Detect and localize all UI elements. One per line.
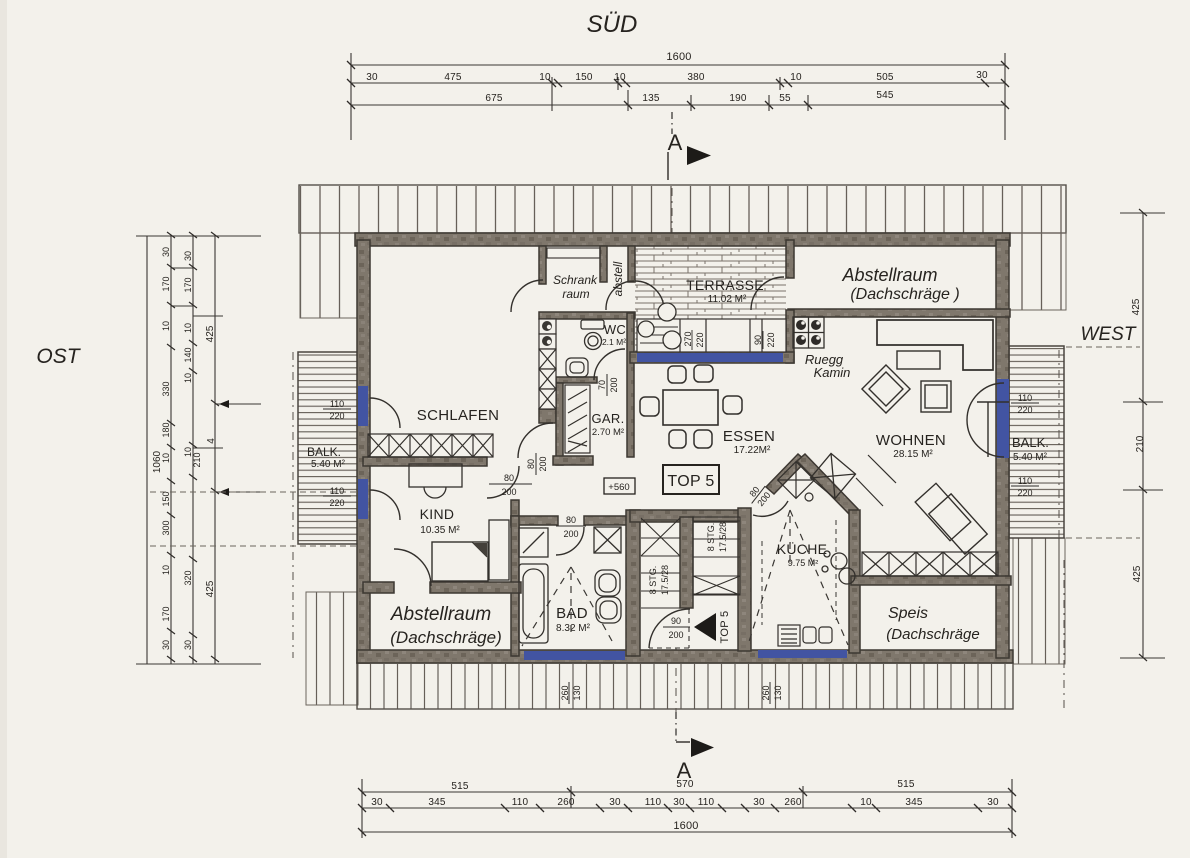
svg-text:220: 220 [1017, 488, 1032, 498]
svg-text:ESSEN: ESSEN [723, 428, 775, 445]
svg-text:220: 220 [766, 332, 776, 347]
svg-text:BALK.: BALK. [307, 445, 341, 459]
svg-text:1600: 1600 [666, 51, 691, 63]
svg-text:17.5/28: 17.5/28 [660, 565, 670, 595]
svg-text:TOP 5: TOP 5 [719, 611, 731, 644]
svg-text:28.15 M²: 28.15 M² [893, 449, 933, 460]
svg-text:110: 110 [698, 797, 715, 808]
svg-text:545: 545 [876, 90, 894, 101]
svg-text:4: 4 [206, 438, 217, 444]
svg-text:180: 180 [161, 422, 171, 437]
svg-text:30: 30 [371, 797, 383, 808]
svg-text:TERRASSE: TERRASSE [686, 277, 764, 293]
svg-text:345: 345 [428, 797, 446, 808]
svg-text:80: 80 [504, 473, 514, 483]
svg-text:TOP 5: TOP 5 [667, 473, 714, 490]
svg-text:80: 80 [566, 515, 576, 525]
svg-text:GAR.: GAR. [592, 411, 625, 426]
svg-text:675: 675 [485, 93, 503, 104]
svg-text:270: 270 [683, 331, 693, 346]
svg-text:30: 30 [161, 247, 171, 257]
svg-text:A: A [668, 130, 683, 155]
svg-text:210: 210 [1135, 435, 1146, 452]
svg-text:80: 80 [526, 459, 536, 469]
svg-text:140: 140 [183, 347, 193, 362]
svg-text:30: 30 [183, 251, 193, 261]
svg-text:130: 130 [572, 685, 582, 700]
svg-text:10: 10 [183, 323, 193, 333]
svg-text:Kamin: Kamin [814, 365, 851, 380]
svg-text:BALK.: BALK. [1012, 435, 1049, 450]
svg-text:30: 30 [753, 797, 765, 808]
svg-text:320: 320 [183, 570, 193, 585]
svg-text:10.35 M²: 10.35 M² [420, 525, 460, 536]
svg-text:135: 135 [642, 93, 660, 104]
svg-text:505: 505 [876, 72, 894, 83]
svg-text:10: 10 [183, 373, 193, 383]
svg-text:200: 200 [668, 630, 683, 640]
svg-text:30: 30 [976, 70, 988, 81]
svg-text:30: 30 [987, 797, 999, 808]
svg-text:raum: raum [562, 287, 589, 301]
svg-text:10: 10 [161, 321, 171, 331]
svg-text:200: 200 [563, 529, 578, 539]
svg-text:220: 220 [695, 332, 705, 347]
svg-text:110: 110 [330, 486, 344, 496]
svg-text:KIND: KIND [420, 506, 455, 522]
svg-text:425: 425 [1132, 565, 1143, 582]
svg-text:200: 200 [501, 487, 516, 497]
svg-text:150: 150 [161, 491, 171, 506]
svg-text:(Dachschräge ): (Dachschräge ) [850, 286, 959, 303]
svg-text:+560: +560 [608, 482, 629, 493]
svg-text:130: 130 [773, 685, 783, 700]
svg-text:30: 30 [183, 640, 193, 650]
svg-text:30: 30 [673, 797, 685, 808]
svg-text:110: 110 [645, 797, 662, 808]
svg-text:30: 30 [366, 72, 378, 83]
svg-text:475: 475 [444, 72, 462, 83]
svg-text:SCHLAFEN: SCHLAFEN [417, 407, 499, 424]
svg-text:380: 380 [687, 72, 705, 83]
svg-text:150: 150 [575, 72, 593, 83]
svg-text:110: 110 [1018, 393, 1032, 403]
svg-text:570: 570 [676, 779, 694, 790]
svg-text:210: 210 [192, 452, 202, 467]
svg-text:8 STG.: 8 STG. [648, 566, 658, 595]
svg-text:17.5/28: 17.5/28 [718, 522, 728, 552]
svg-text:30: 30 [609, 797, 621, 808]
svg-text:220: 220 [329, 498, 344, 508]
svg-text:110: 110 [330, 399, 344, 409]
svg-text:110: 110 [1018, 476, 1032, 486]
svg-text:190: 190 [729, 93, 747, 104]
svg-text:11.02 M²: 11.02 M² [708, 294, 747, 305]
svg-text:WEST: WEST [1081, 324, 1137, 345]
svg-text:8.32 M²: 8.32 M² [556, 623, 591, 634]
svg-text:30: 30 [161, 640, 171, 650]
svg-text:2.70 M²: 2.70 M² [592, 427, 624, 438]
svg-text:300: 300 [161, 520, 171, 535]
svg-text:220: 220 [329, 411, 344, 421]
svg-text:Abstellraum: Abstellraum [841, 265, 937, 285]
svg-text:110: 110 [512, 797, 529, 808]
svg-text:17.22M²: 17.22M² [734, 445, 771, 456]
svg-text:10: 10 [539, 72, 551, 83]
svg-text:5.40 M²: 5.40 M² [311, 459, 346, 470]
svg-text:10: 10 [161, 565, 171, 575]
svg-text:(Dachschräge): (Dachschräge) [390, 628, 502, 647]
svg-text:10: 10 [790, 72, 802, 83]
svg-text:2.1 M²: 2.1 M² [602, 337, 626, 347]
svg-text:515: 515 [897, 779, 915, 790]
svg-text:170: 170 [183, 277, 193, 292]
svg-text:425: 425 [1131, 298, 1142, 315]
svg-text:8 STG.: 8 STG. [706, 523, 716, 552]
svg-text:WOHNEN: WOHNEN [876, 432, 946, 449]
svg-text:10: 10 [161, 453, 171, 463]
svg-text:220: 220 [1017, 405, 1032, 415]
svg-text:WC: WC [604, 322, 626, 337]
svg-text:330: 330 [161, 381, 171, 396]
svg-text:5.40 M²: 5.40 M² [1013, 452, 1048, 463]
svg-text:260: 260 [557, 797, 575, 808]
svg-text:260: 260 [784, 797, 802, 808]
svg-text:1600: 1600 [673, 820, 698, 832]
svg-text:SÜD: SÜD [587, 11, 638, 38]
svg-text:10: 10 [614, 72, 626, 83]
svg-text:200: 200 [609, 377, 619, 392]
svg-text:70: 70 [597, 380, 607, 390]
svg-text:10: 10 [860, 797, 872, 808]
svg-text:55: 55 [779, 93, 791, 104]
svg-text:425: 425 [205, 580, 216, 597]
svg-text:170: 170 [161, 276, 171, 291]
svg-text:515: 515 [451, 781, 469, 792]
svg-text:345: 345 [905, 797, 923, 808]
svg-text:200: 200 [538, 456, 548, 471]
svg-text:90: 90 [753, 335, 763, 345]
svg-text:9.75 M²: 9.75 M² [788, 558, 819, 568]
svg-text:(Dachschräge: (Dachschräge [886, 626, 979, 643]
svg-text:Abstellraum: Abstellraum [390, 604, 491, 625]
svg-text:425: 425 [205, 325, 216, 342]
svg-text:90: 90 [671, 616, 681, 626]
svg-text:Schrank: Schrank [553, 273, 598, 287]
svg-text:BAD: BAD [556, 605, 588, 622]
svg-text:KÜCHE: KÜCHE [777, 540, 828, 557]
svg-text:OST: OST [36, 345, 81, 368]
svg-text:abstell: abstell [611, 261, 625, 296]
svg-text:170: 170 [161, 606, 171, 621]
svg-text:Speis: Speis [888, 605, 928, 622]
